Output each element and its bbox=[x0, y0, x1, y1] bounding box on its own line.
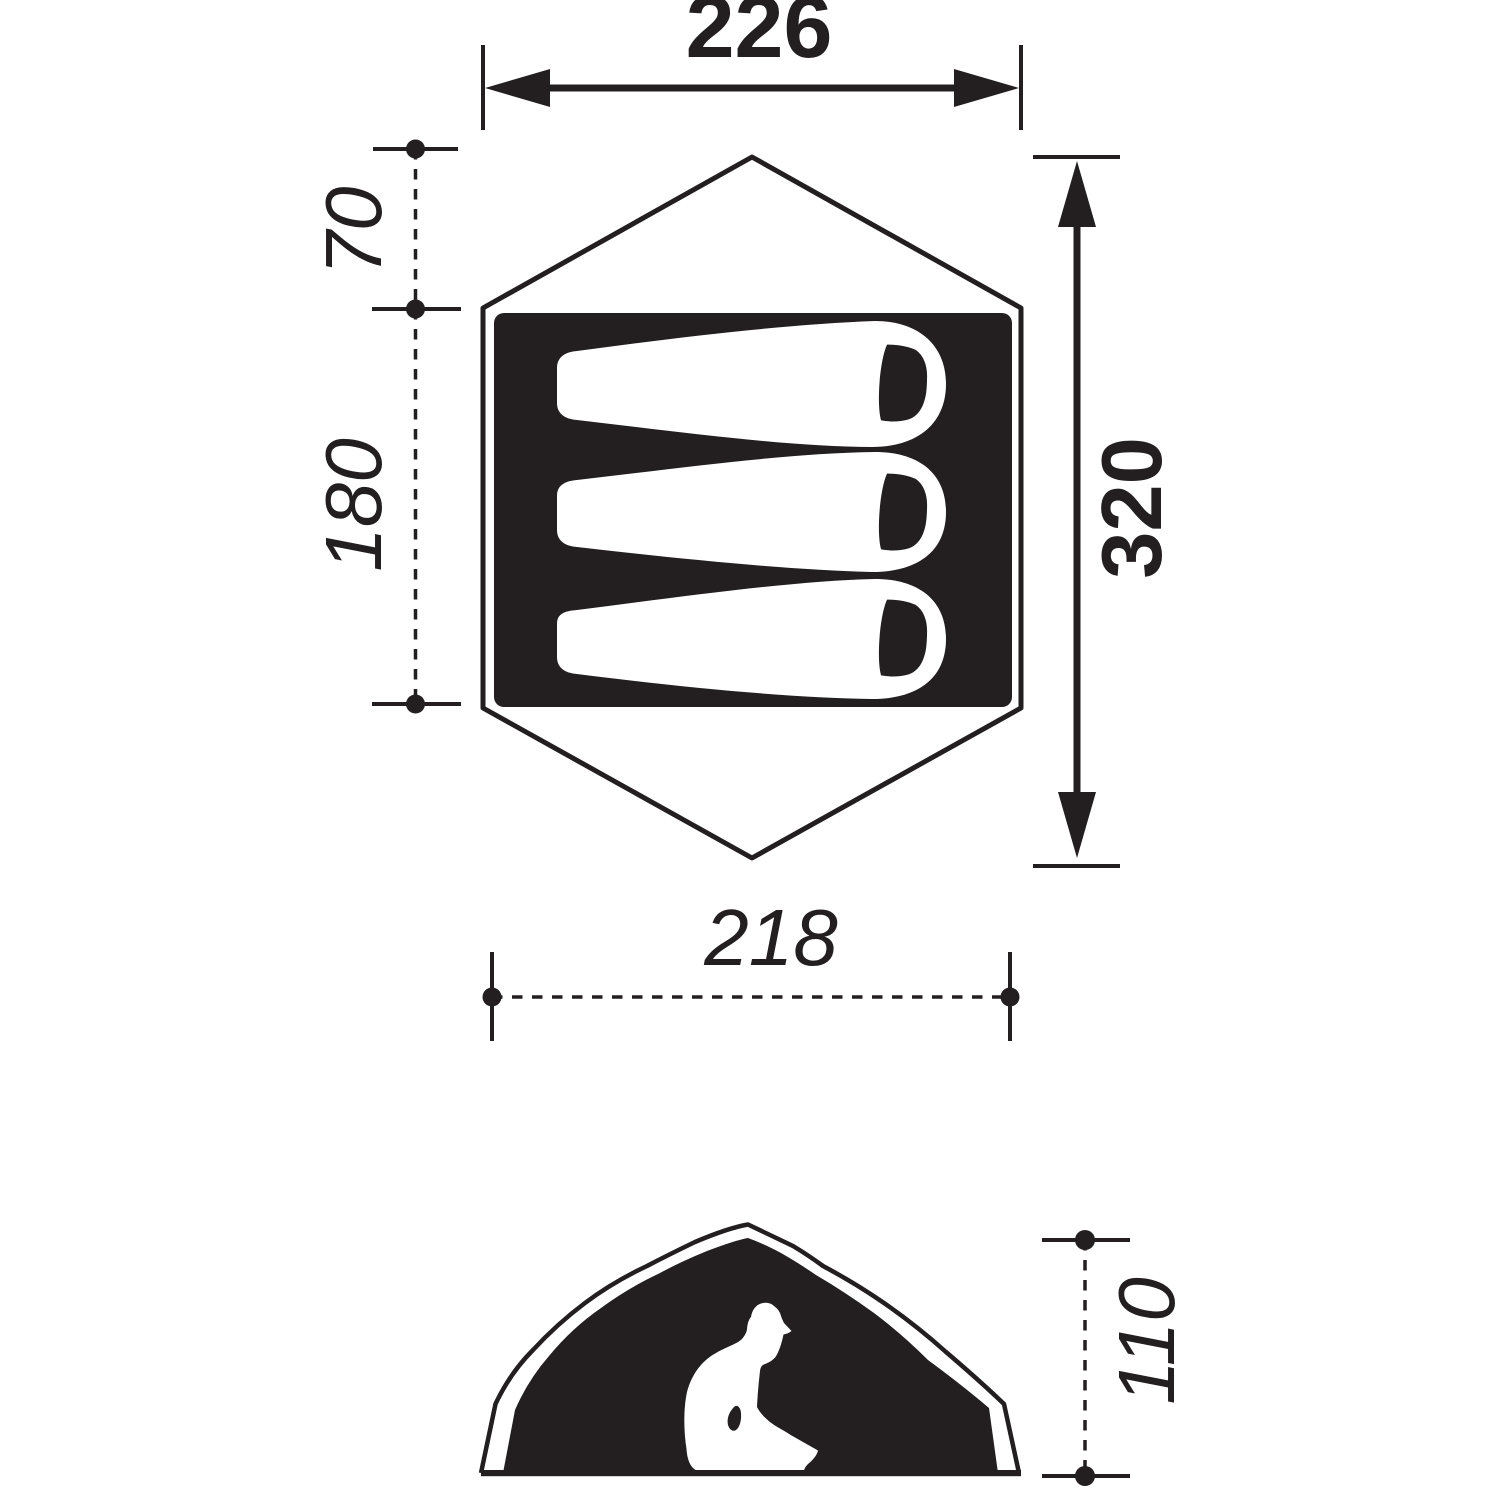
svg-text:320: 320 bbox=[1085, 437, 1180, 579]
svg-text:218: 218 bbox=[703, 893, 838, 982]
svg-text:70: 70 bbox=[309, 187, 398, 276]
svg-text:180: 180 bbox=[309, 438, 398, 571]
svg-text:110: 110 bbox=[1102, 1277, 1191, 1405]
svg-text:226: 226 bbox=[686, 0, 833, 76]
